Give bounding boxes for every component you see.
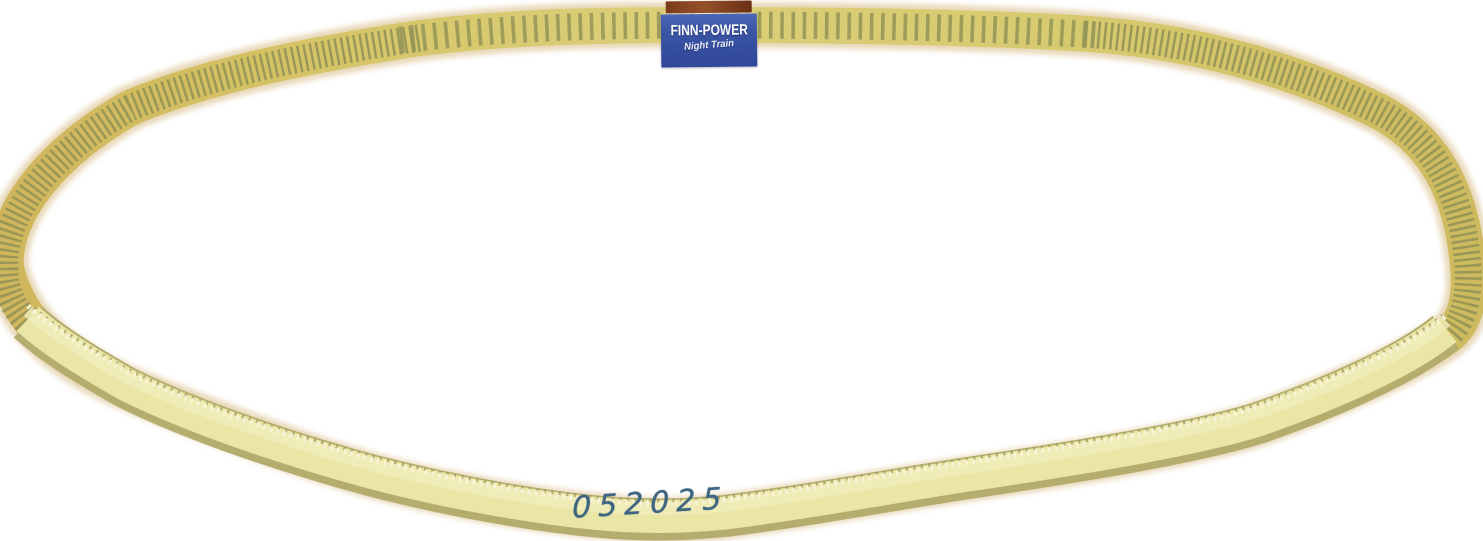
- belt-photo: FINN-POWER Night Train 052025: [0, 0, 1483, 541]
- label-blue-panel: FINN-POWER Night Train: [660, 13, 757, 67]
- belt-back-serration: [28, 306, 1446, 503]
- belt-back-serration-dark: [28, 303, 1446, 500]
- timing-belt: [0, 0, 1483, 541]
- brand-text: FINN-POWER: [670, 24, 747, 39]
- label-wood-strip: [665, 1, 751, 14]
- belt-label: FINN-POWER Night Train: [659, 0, 759, 68]
